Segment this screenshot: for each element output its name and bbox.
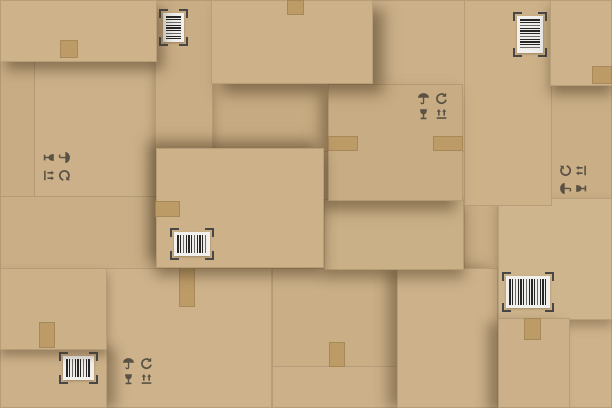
fragile-icon	[122, 373, 135, 386]
recycle-icon	[58, 169, 71, 182]
fragile-icon	[417, 108, 430, 121]
barcode-bars	[166, 16, 181, 39]
barcode-corner-bracket	[538, 48, 547, 57]
barcode-corner-bracket	[538, 12, 547, 21]
barcode-corner-bracket	[89, 375, 98, 384]
barcode-corner-bracket	[502, 272, 511, 281]
barcode-corner-bracket	[179, 37, 188, 46]
barcode-corner-bracket	[159, 37, 168, 46]
packing-tape	[155, 201, 180, 217]
this-way-up-icon	[140, 373, 153, 386]
barcode-corner-bracket	[159, 9, 168, 18]
box-bottom-center-low	[272, 366, 400, 408]
packing-tape	[60, 40, 78, 58]
barcode-corner-bracket	[545, 303, 554, 312]
keep-dry-icon	[559, 182, 572, 195]
packing-tape	[179, 263, 195, 307]
this-way-up-icon	[435, 108, 448, 121]
packaging-symbols-group	[417, 92, 448, 121]
barcode-sticker	[63, 356, 94, 380]
barcode-corner-bracket	[205, 228, 214, 237]
barcode-corner-bracket	[170, 228, 179, 237]
barcode-label	[63, 356, 94, 380]
cardboard-boxes-collage	[0, 0, 612, 408]
this-way-up-icon	[42, 169, 55, 182]
box-bottom-right-b	[568, 318, 612, 408]
barcode-corner-bracket	[59, 375, 68, 384]
barcode-label	[506, 276, 550, 308]
packing-tape	[524, 318, 541, 340]
packing-tape	[433, 136, 463, 151]
barcode-sticker	[174, 232, 210, 256]
barcode-bars	[509, 279, 547, 305]
packaging-symbols-group	[559, 164, 588, 195]
box-top-left	[0, 0, 157, 62]
fragile-icon	[575, 182, 588, 195]
packing-tape	[328, 136, 358, 151]
recycle-icon	[435, 92, 448, 105]
barcode-corner-bracket	[502, 303, 511, 312]
packing-tape	[592, 66, 612, 84]
packing-tape	[287, 0, 304, 15]
box-bottom-mid-right	[397, 268, 498, 408]
barcode-corner-bracket	[513, 12, 522, 21]
barcode-bars	[520, 19, 540, 50]
box-left-narrow	[0, 60, 35, 198]
packing-tape	[39, 322, 55, 348]
packing-tape	[329, 342, 345, 367]
this-way-up-icon	[575, 164, 588, 177]
barcode-corner-bracket	[59, 352, 68, 361]
barcode-sticker	[517, 16, 543, 53]
barcode-corner-bracket	[179, 9, 188, 18]
barcode-corner-bracket	[513, 48, 522, 57]
barcode-bars	[177, 235, 207, 253]
packaging-symbols-group	[42, 151, 71, 182]
keep-dry-icon	[122, 357, 135, 370]
box-center-lower	[324, 199, 464, 270]
barcode-sticker	[506, 276, 550, 308]
keep-dry-icon	[58, 151, 71, 164]
barcode-label	[174, 232, 210, 256]
recycle-icon	[140, 357, 153, 370]
barcode-bars	[66, 359, 91, 377]
barcode-label	[517, 16, 543, 53]
packaging-symbols-group	[122, 357, 153, 386]
recycle-icon	[559, 164, 572, 177]
barcode-corner-bracket	[89, 352, 98, 361]
barcode-sticker	[163, 13, 184, 42]
box-left-mid	[0, 196, 159, 270]
keep-dry-icon	[417, 92, 430, 105]
barcode-corner-bracket	[205, 251, 214, 260]
fragile-icon	[42, 151, 55, 164]
box-under-top-center	[211, 82, 332, 152]
barcode-label	[163, 13, 184, 42]
barcode-corner-bracket	[170, 251, 179, 260]
barcode-corner-bracket	[545, 272, 554, 281]
